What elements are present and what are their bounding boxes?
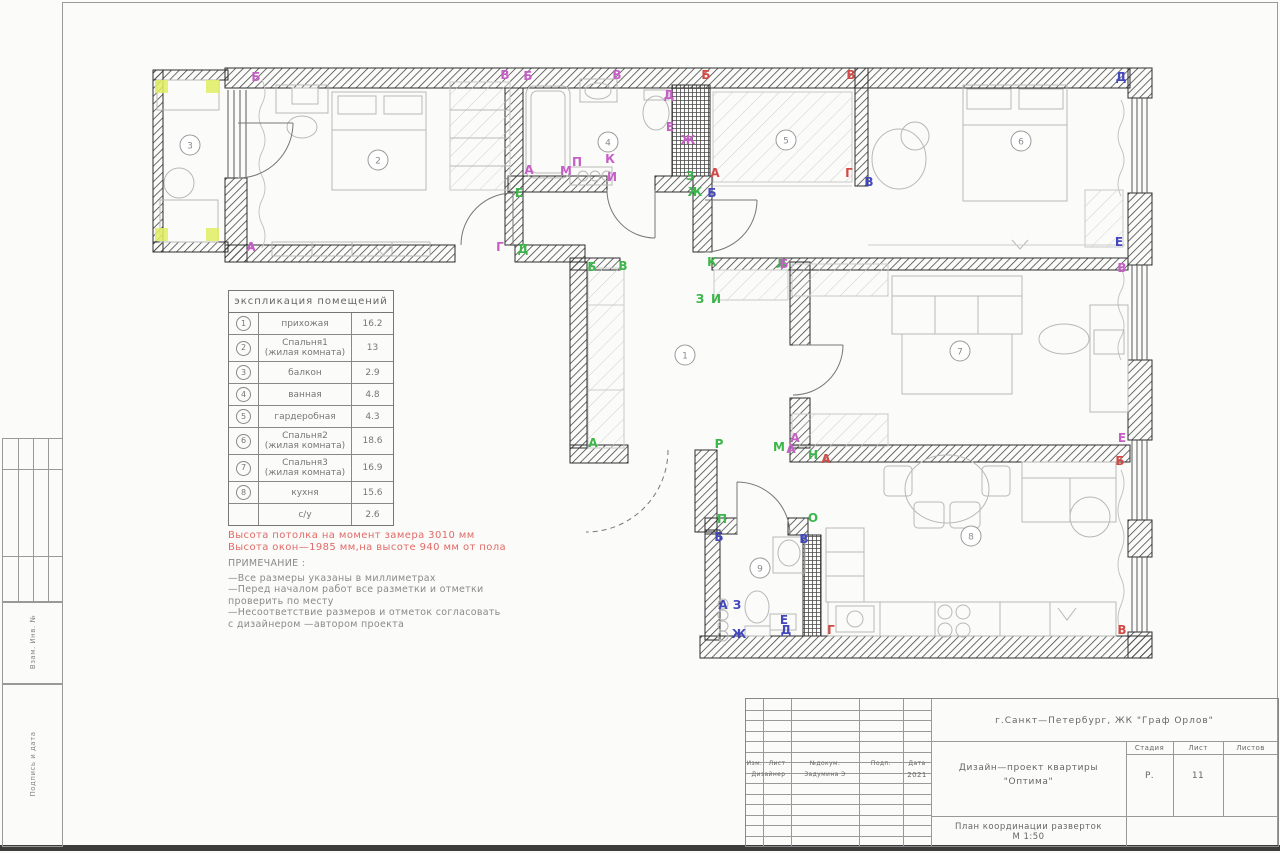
legend-rows: 1прихожая16.22Спальня1(жилая комната)133… — [229, 313, 393, 525]
legend-row: с/у2.6 — [229, 504, 393, 525]
legend-table: экспликация помещений 1прихожая16.22Спал… — [228, 290, 394, 526]
note-line: проверить по месту — [228, 596, 501, 608]
elevation-marker: А — [710, 166, 720, 180]
elevation-marker: Б — [251, 70, 260, 84]
stamp-box-podpis: Подпись и дата — [2, 683, 63, 847]
elevation-marker: В — [1117, 261, 1126, 275]
elevation-marker: Б — [779, 257, 788, 271]
elevation-marker: Е — [666, 120, 674, 134]
elevation-marker: П — [717, 512, 727, 526]
elevation-marker: В — [618, 259, 627, 273]
frame-top-line — [62, 2, 1277, 3]
elevation-marker: П — [572, 155, 582, 169]
note-line: —Все размеры указаны в миллиметрах — [228, 573, 501, 585]
legend-row: 1прихожая16.2 — [229, 313, 393, 335]
tb-sheets-value — [1223, 769, 1278, 783]
elevation-marker: Е — [1118, 431, 1126, 445]
stamp-box-vzam: Взам. Инв. № — [2, 601, 63, 685]
elevation-marker: В — [799, 532, 808, 546]
drawing-sheet: { "sheet": { "side_label_1": "Взам. Инв.… — [0, 0, 1280, 853]
red-note-line: Высота окон—1985 мм,на высоте 940 мм от … — [228, 542, 506, 554]
elevation-marker: И — [607, 170, 617, 184]
elevation-marker: А — [246, 240, 256, 254]
elevation-marker: Д — [1116, 70, 1127, 84]
side-label-vzam: Взам. Инв. № — [29, 602, 37, 682]
elevation-marker: Б — [587, 260, 596, 274]
note-line: —Несоответствие размеров и отметок согла… — [228, 607, 501, 619]
notes-block: ПРИМЕЧАНИЕ : —Все размеры указаны в милл… — [228, 558, 501, 630]
elevation-marker: З — [686, 169, 695, 183]
svg-text:3: 3 — [187, 142, 193, 152]
elevation-marker: Е — [515, 186, 523, 200]
elevation-marker: Г — [845, 166, 853, 180]
elevation-marker: З — [696, 292, 705, 306]
svg-text:1: 1 — [682, 352, 688, 362]
balcony-highlights — [155, 80, 219, 241]
stamp-box-approvals — [2, 438, 63, 603]
tb-stage-value: Р. — [1126, 769, 1173, 783]
svg-text:9: 9 — [757, 565, 763, 575]
elevation-marker: О — [808, 511, 818, 525]
svg-text:4: 4 — [605, 139, 611, 149]
note-line: с дизайнером —автором проекта — [228, 619, 501, 631]
elevation-marker: Д — [664, 88, 675, 102]
legend-row: 6Спальня2(жилая комната)18.6 — [229, 428, 393, 455]
elevation-marker: В — [1117, 623, 1126, 637]
elevation-marker: В — [864, 175, 873, 189]
elevation-marker: Е — [1115, 235, 1123, 249]
elevation-marker: Д — [781, 623, 792, 637]
tb-sheet-value: 11 — [1173, 769, 1223, 783]
legend-row: 2Спальня1(жилая комната)13 — [229, 335, 393, 362]
elevation-marker: В — [612, 68, 621, 82]
elevation-marker: А — [821, 452, 831, 466]
tb-stage-label: Стадия — [1126, 741, 1173, 754]
tb-designer-name: Задумина Э — [791, 769, 859, 780]
elevation-marker: Р — [715, 437, 724, 451]
tb-project2: "Оптима" — [931, 775, 1126, 789]
elevation-marker: К — [707, 255, 717, 269]
tb-date: 2021 — [903, 769, 931, 780]
tb-col-podp: Подп. — [859, 758, 903, 769]
elevation-marker: Б — [523, 69, 532, 83]
elevation-marker: Д — [518, 242, 529, 256]
elevation-marker: Б — [714, 530, 723, 544]
elevation-marker: Г — [496, 240, 504, 254]
legend-row: 4ванная4.8 — [229, 384, 393, 406]
svg-text:8: 8 — [968, 533, 974, 543]
tb-col-list: Лист — [763, 758, 791, 769]
elevation-marker: К — [605, 152, 615, 166]
svg-text:7: 7 — [957, 348, 963, 358]
tb-role: Дизайнер — [746, 769, 791, 780]
legend-row: 3балкон2.9 — [229, 362, 393, 384]
tb-col-data: Дата — [903, 758, 931, 769]
red-note-line: Высота потолка на момент замера 3010 мм — [228, 530, 506, 542]
note-line: —Перед началом работ все разметки и отме… — [228, 584, 501, 596]
tb-project: Дизайн—проект квартиры — [931, 761, 1126, 775]
elevation-marker: Ж — [681, 133, 696, 147]
tb-col-dok: №докум. — [791, 758, 859, 769]
legend-row: 7Спальня3(жилая комната)16.9 — [229, 455, 393, 482]
elevation-marker: Б — [1115, 454, 1124, 468]
tb-sheet-label: Лист — [1173, 741, 1223, 754]
elevation-marker: Ж — [732, 627, 747, 641]
elevation-marker: З — [733, 598, 742, 612]
elevation-marker: Б — [707, 186, 716, 200]
tb-scale: М 1:50 — [931, 831, 1126, 843]
legend-row: 5гардеробная4.3 — [229, 406, 393, 428]
red-notes: Высота потолка на момент замера 3010 ммВ… — [228, 530, 506, 554]
svg-text:2: 2 — [375, 157, 381, 167]
tb-col-izm: Изм. — [746, 758, 763, 769]
tb-address: г.Санкт—Петербург, ЖК "Граф Орлов" — [931, 707, 1278, 735]
elevation-marker: Н — [808, 448, 818, 462]
elevation-marker: А — [524, 163, 534, 177]
elevation-marker: Г — [827, 623, 835, 637]
elevation-marker: А — [718, 598, 728, 612]
tb-sheets-label: Листов — [1223, 741, 1278, 754]
elevation-marker: А — [588, 436, 598, 450]
svg-text:6: 6 — [1018, 138, 1024, 148]
elevation-marker: В — [846, 68, 855, 82]
legend-title: экспликация помещений — [229, 291, 393, 313]
elevation-marker: Б — [701, 68, 710, 82]
elevation-marker: М — [560, 164, 572, 178]
elevation-marker: Ж — [688, 185, 703, 199]
title-block: Изм. Лист №докум. Подп. Дата Дизайнер За… — [745, 698, 1279, 847]
elevation-marker: М — [773, 440, 785, 454]
elevation-marker: В — [500, 68, 509, 82]
elevation-marker: А — [786, 442, 796, 456]
legend-row: 8кухня15.6 — [229, 482, 393, 504]
notes-title: ПРИМЕЧАНИЕ : — [228, 558, 501, 570]
side-label-podpis: Подпись и дата — [29, 704, 37, 824]
svg-text:5: 5 — [783, 137, 789, 147]
elevation-marker: И — [711, 292, 721, 306]
